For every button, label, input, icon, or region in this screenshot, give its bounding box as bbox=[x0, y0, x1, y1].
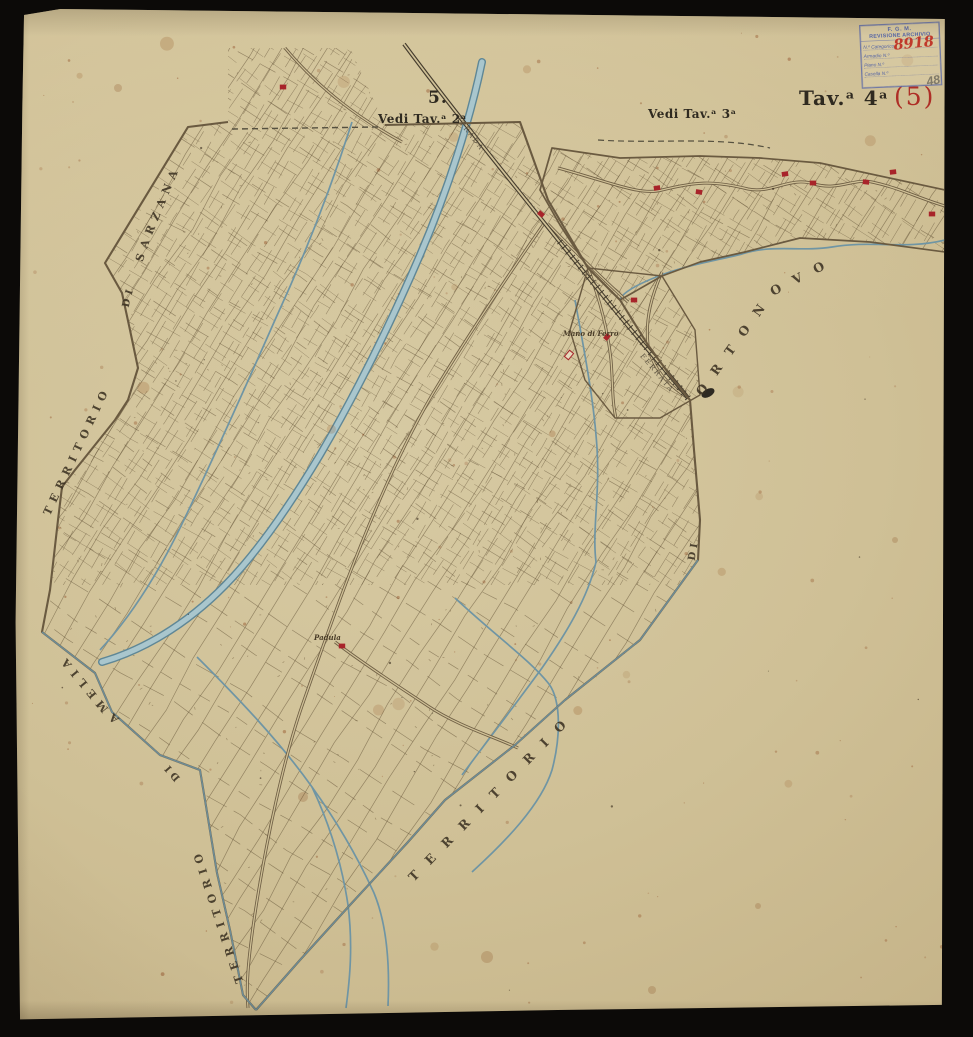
sheet-number: 5. bbox=[428, 88, 448, 108]
plate-title: Tav.ᵃ 4ᵃ bbox=[799, 86, 889, 110]
place-label-padula: Padula bbox=[313, 633, 341, 642]
place-label-mano-di-ferro: Mano di Ferro bbox=[562, 329, 619, 338]
see-plate-3-note: Vedi Tav.ᵃ 3ᵃ bbox=[648, 107, 737, 121]
territory-label-southwest-territorio: TERRITORIO bbox=[190, 846, 247, 985]
territory-label-southeast-ortonovo: ORTONOVO bbox=[693, 252, 840, 399]
cadastral-map-drawing: TERRITORIO DI SARZANA TERRITORIO DI AMEL… bbox=[0, 0, 973, 1037]
map-paper-sheet: TERRITORIO DI SARZANA TERRITORIO DI AMEL… bbox=[0, 0, 973, 1037]
territory-label-northwest-territorio: TERRITORIO bbox=[41, 384, 113, 518]
scanned-cadastral-map: TERRITORIO DI SARZANA TERRITORIO DI AMEL… bbox=[0, 0, 973, 1037]
map-linework-layer bbox=[0, 0, 973, 1037]
stamp-row-piano: Piano N.º bbox=[864, 59, 938, 68]
see-plate-2-note: Vedi Tav.ᵃ 2ᵃ bbox=[378, 112, 467, 126]
archive-revision-stamp: F. G. M. REVISIONE ARCHIVIO N.º Categori… bbox=[859, 21, 942, 88]
stamp-pencil-number: 48 bbox=[925, 72, 942, 89]
